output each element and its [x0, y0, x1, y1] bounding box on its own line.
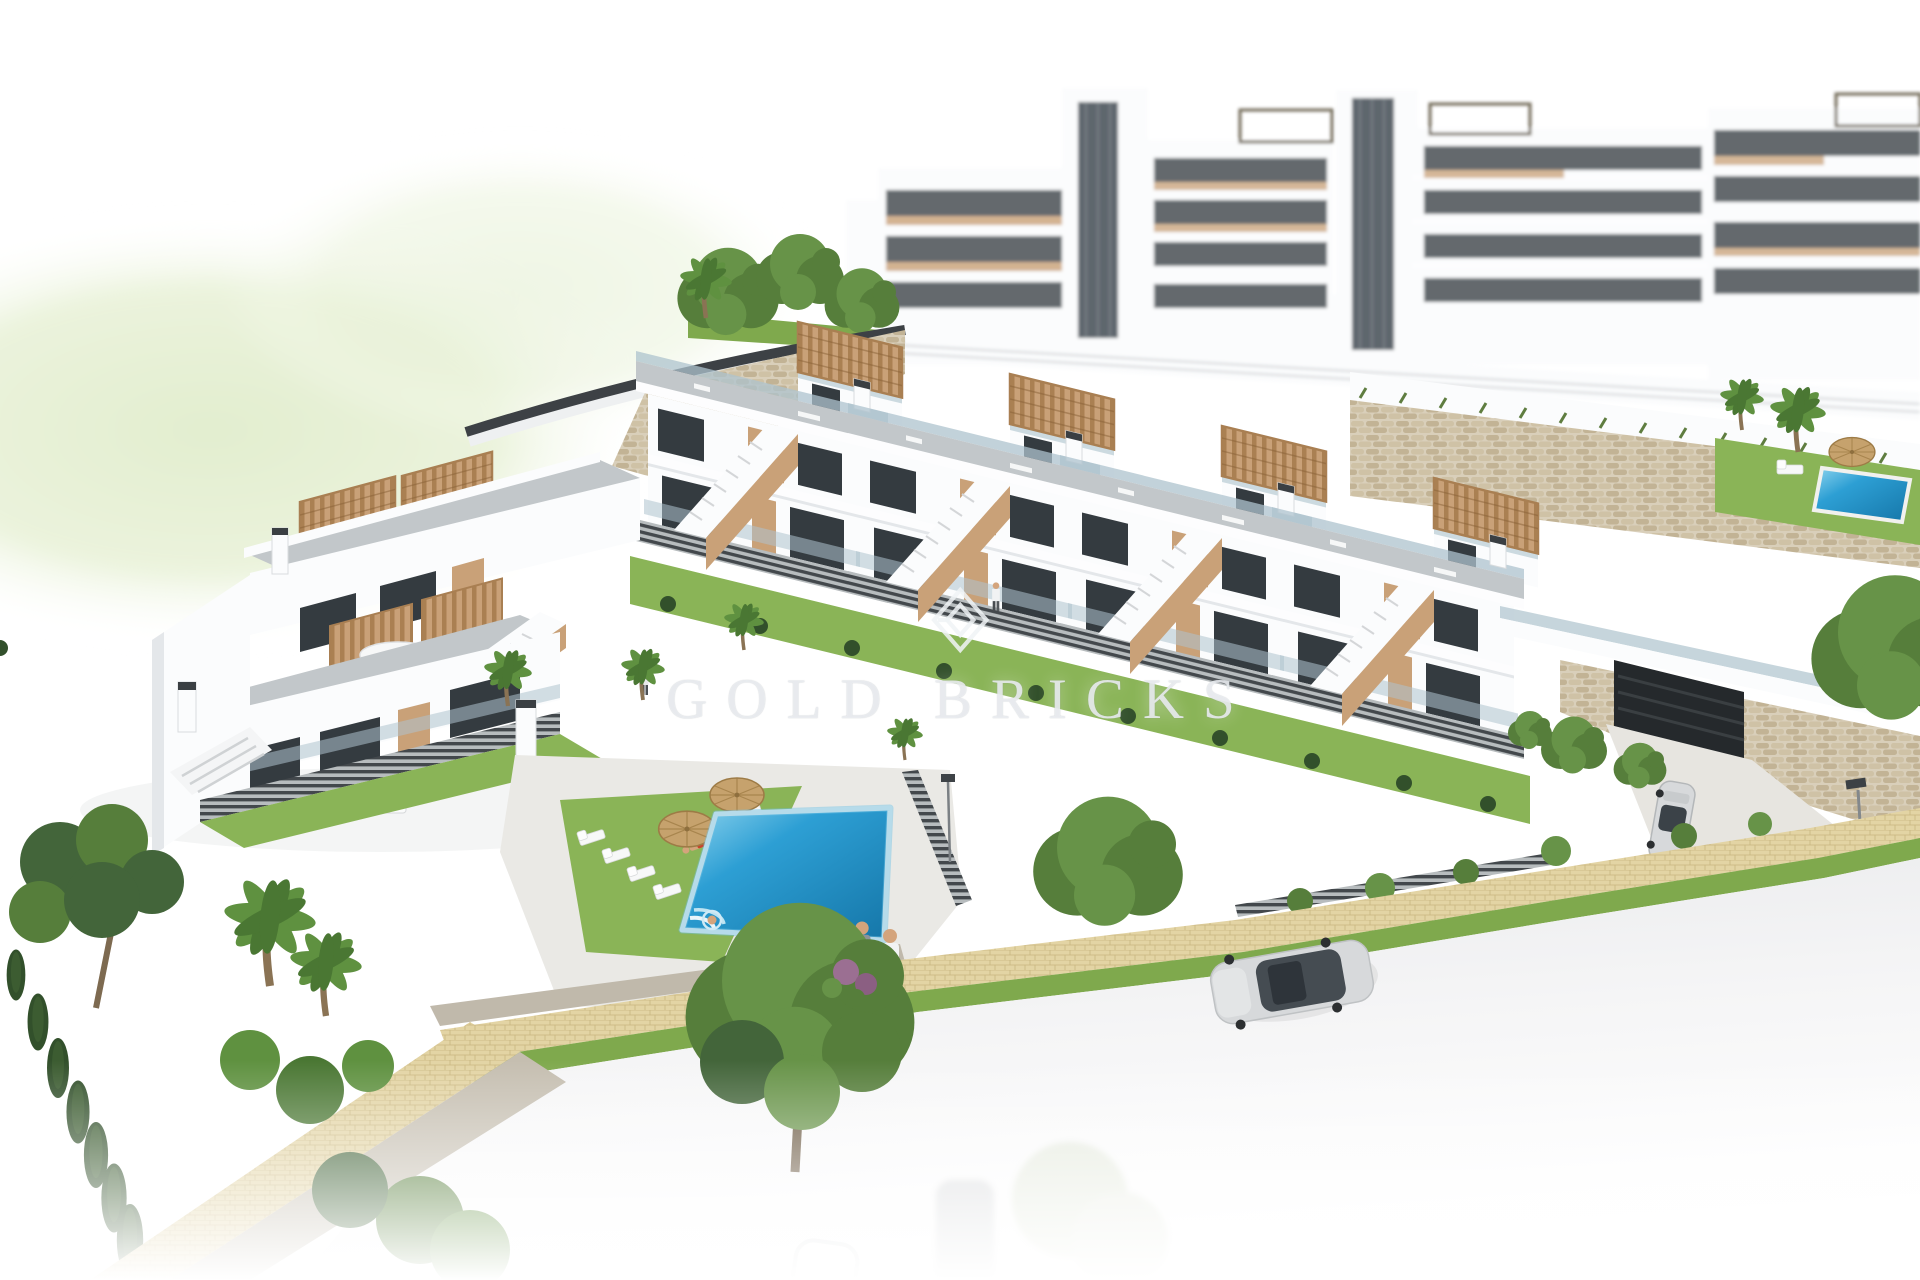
apartment-tower-2	[1336, 90, 1418, 350]
bottom-fade	[0, 1060, 1920, 1280]
straw-umbrella-1	[710, 778, 764, 812]
apartment-tower-1	[1062, 88, 1148, 340]
render-canvas: GOLD BRICKS	[0, 0, 1920, 1280]
aerial-render	[0, 0, 1920, 1280]
apartment-block-2	[1148, 110, 1333, 345]
apartment-block-4	[1708, 94, 1920, 380]
apartment-block-3	[1412, 104, 1714, 360]
